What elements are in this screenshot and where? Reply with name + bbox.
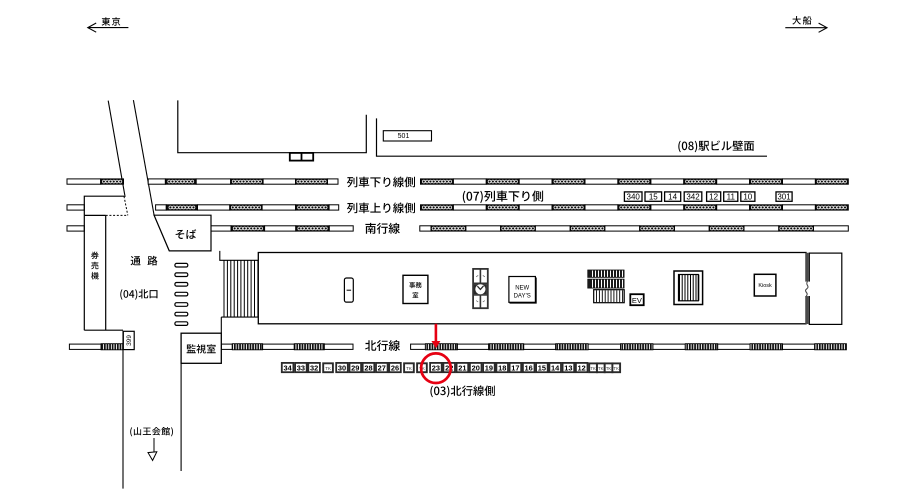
svg-text:15: 15: [538, 364, 546, 373]
svg-text:17: 17: [511, 364, 519, 373]
svg-text:29: 29: [351, 364, 359, 373]
svg-text:18: 18: [498, 364, 506, 373]
svg-text:19: 19: [485, 364, 493, 373]
svg-text:12: 12: [577, 364, 585, 373]
svg-text:TK: TK: [590, 366, 596, 371]
svg-text:23: 23: [432, 364, 440, 373]
svg-text:20: 20: [472, 364, 480, 373]
svg-text:13: 13: [564, 364, 572, 373]
svg-text:399: 399: [126, 335, 133, 346]
svg-text:30: 30: [338, 364, 346, 373]
svg-text:16: 16: [524, 364, 532, 373]
svg-text:26: 26: [391, 364, 399, 373]
svg-text:34: 34: [283, 364, 292, 373]
svg-text:14: 14: [551, 364, 560, 373]
svg-text:21: 21: [458, 364, 466, 373]
svg-text:15: 15: [649, 193, 658, 202]
svg-text:32: 32: [310, 364, 318, 373]
svg-text:342: 342: [686, 193, 700, 202]
svg-text:EV: EV: [632, 296, 642, 305]
svg-text:33: 33: [297, 364, 305, 373]
svg-text:12: 12: [709, 193, 718, 202]
svg-text:TK: TK: [406, 366, 412, 371]
svg-text:301: 301: [777, 193, 791, 202]
svg-text:28: 28: [364, 364, 372, 373]
svg-text:DAY’S: DAY’S: [514, 293, 531, 299]
svg-text:NEW: NEW: [515, 285, 529, 291]
svg-text:501: 501: [398, 133, 410, 140]
svg-text:TK: TK: [606, 366, 612, 371]
svg-text:TK: TK: [325, 366, 331, 371]
svg-text:14: 14: [668, 193, 677, 202]
svg-text:11: 11: [727, 193, 736, 202]
svg-text:TK: TK: [598, 366, 604, 371]
svg-text:TK: TK: [614, 366, 620, 371]
svg-text:Kiosk: Kiosk: [758, 283, 772, 289]
svg-text:340: 340: [627, 193, 641, 202]
svg-text:10: 10: [743, 193, 752, 202]
svg-text:27: 27: [378, 364, 386, 373]
